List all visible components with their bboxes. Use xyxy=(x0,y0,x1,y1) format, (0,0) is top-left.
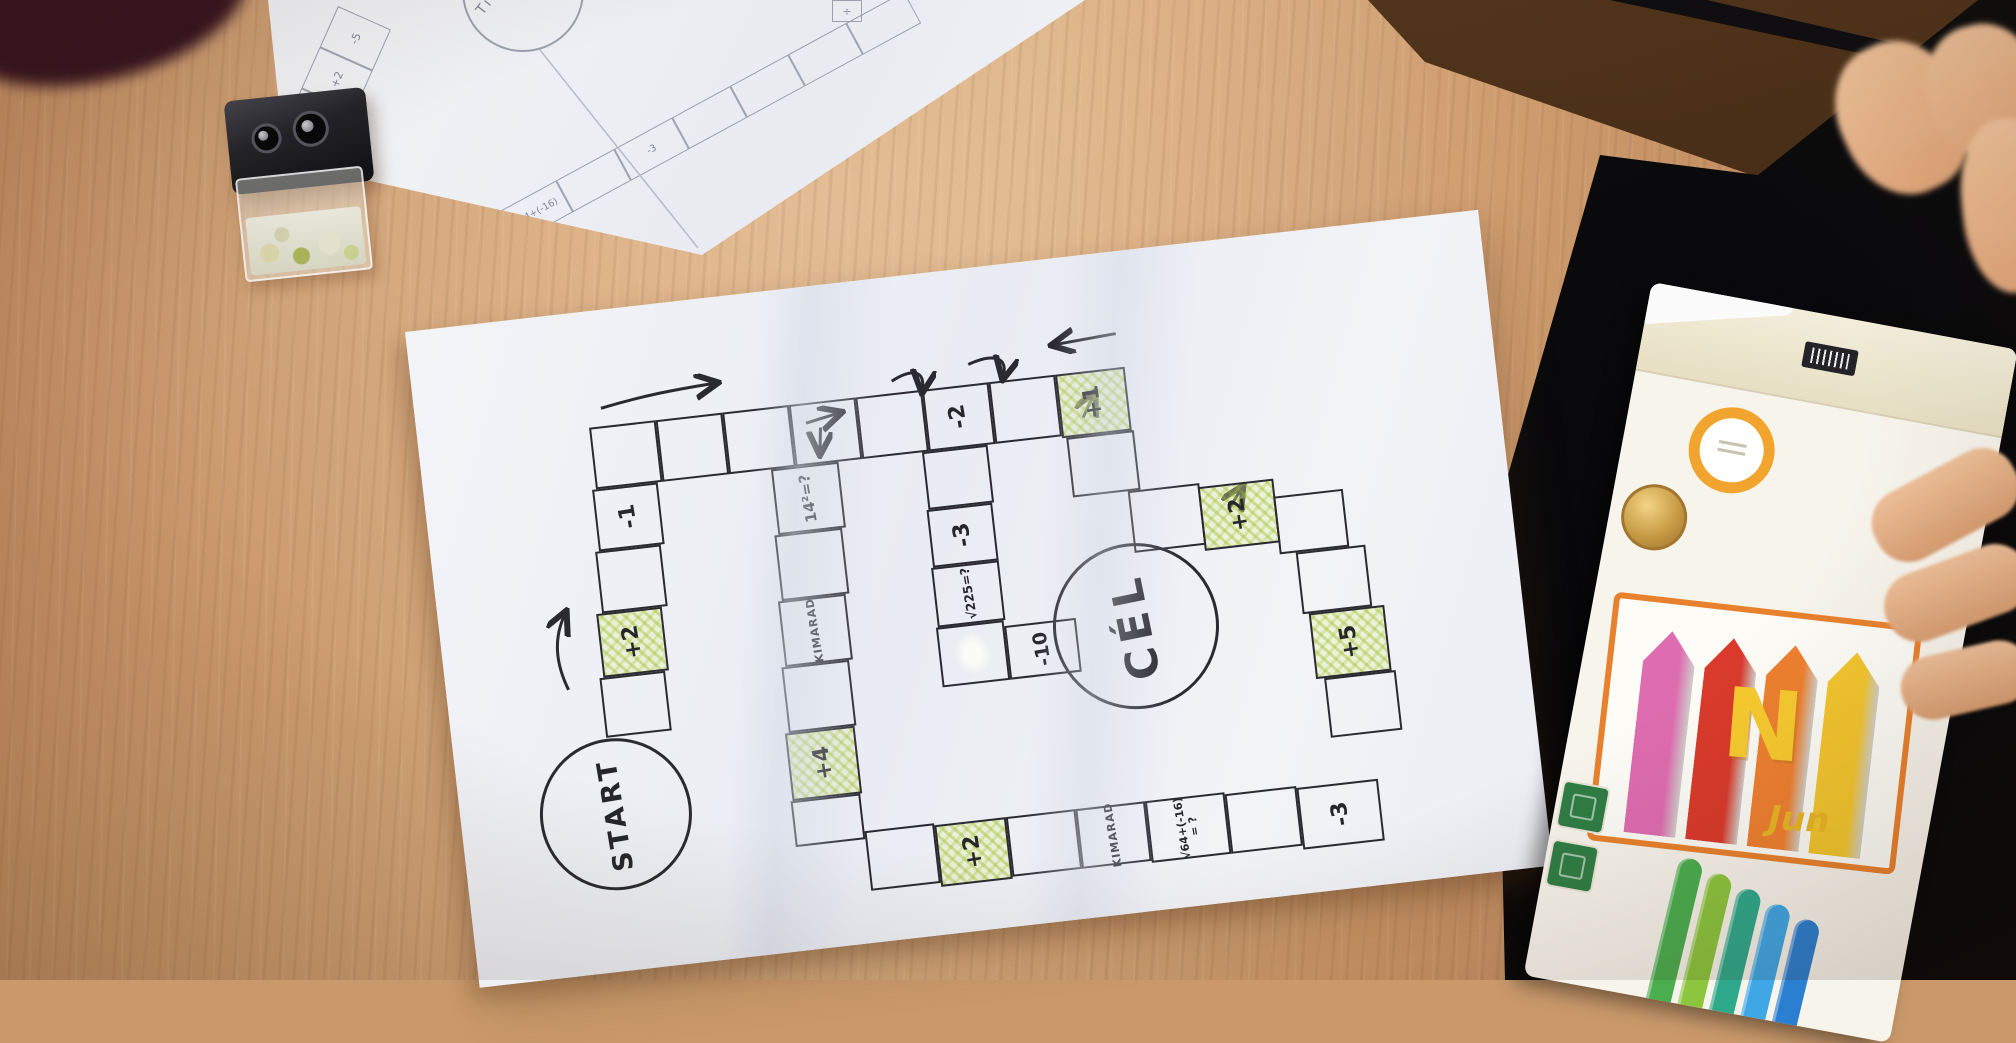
board-cell-blank xyxy=(1225,786,1303,854)
board-cell-blank xyxy=(589,420,663,489)
box-orange-ring-logo xyxy=(1682,400,1782,500)
board-cell-+4: +4 xyxy=(785,726,862,801)
board-cell-label: +2 xyxy=(618,624,646,661)
sharpener-shavings-container xyxy=(235,166,373,283)
correction-fluid-mark xyxy=(951,629,996,679)
board-cell-label: KIMARAD xyxy=(804,597,826,663)
board-cell-blank xyxy=(1066,430,1140,497)
board-cell-label: KIMARAD xyxy=(1102,802,1124,868)
board-cell-√64+(-16)=?: √64+(-16) = ? xyxy=(1145,792,1232,863)
board-cell-√225=?: √225=? xyxy=(931,560,1005,627)
eco-badge xyxy=(1555,779,1611,835)
gold-seal-coin xyxy=(1616,479,1693,556)
game-board-paper: START CÉL -2+1-1+214²=?KIMARA xyxy=(405,210,1553,988)
board-cell--10: -10 xyxy=(1004,618,1082,680)
eco-badge xyxy=(1544,838,1600,894)
real-colored-pencils xyxy=(1642,848,1931,1043)
board-cell-label: 14²=? xyxy=(797,473,821,524)
board-cell-blank xyxy=(864,823,940,891)
box-brand-letter: N xyxy=(1719,667,1808,785)
board-cell-blank xyxy=(1273,489,1349,555)
board-cell-label: +2 xyxy=(1225,496,1253,533)
board-cell-+1: +1 xyxy=(1055,367,1132,439)
board-cell-+2: +2 xyxy=(934,817,1013,887)
board-cell-KIMARAD: KIMARAD xyxy=(778,594,853,667)
board-cell--3: -3 xyxy=(927,503,999,568)
board-cell-label: -3 xyxy=(949,521,976,549)
board-cell-label: √64+(-16) = ? xyxy=(1172,795,1205,860)
board-cell--3: -3 xyxy=(1296,779,1384,850)
board-cell-+2: +2 xyxy=(1198,479,1281,551)
board-cell-label: -1 xyxy=(615,503,642,531)
board-cell-blank xyxy=(936,620,1010,687)
board-cell-+2: +2 xyxy=(596,607,669,678)
board-cell-label: -2 xyxy=(945,403,972,431)
board-cell-blank xyxy=(791,793,866,847)
board-cell-blank xyxy=(1128,483,1207,553)
board-cell-label: +4 xyxy=(809,745,837,782)
board-cell-label: +5 xyxy=(1336,623,1364,660)
board-cell-blank xyxy=(722,405,796,474)
board-cell-blank xyxy=(1324,670,1402,738)
board-cell-blank xyxy=(599,671,671,738)
board-cell-blank xyxy=(774,528,849,601)
board-cell-blank xyxy=(1006,809,1082,877)
board-cell-14²=?: 14²=? xyxy=(771,462,846,535)
board-cell-blank xyxy=(656,413,730,482)
board-cell-label: -10 xyxy=(1030,630,1055,667)
board-cell-blank xyxy=(988,375,1062,444)
board-cell-label: +2 xyxy=(959,833,987,870)
pencil-shavings xyxy=(245,206,366,276)
board-cell-blank xyxy=(781,660,856,733)
artwork-pencil xyxy=(1623,628,1698,838)
board-cell--1: -1 xyxy=(592,482,665,551)
board-cell-label: √225=? xyxy=(957,567,979,621)
photo-scene: { "main_board": { "start_label": "START"… xyxy=(0,0,2016,980)
board-cell-+5: +5 xyxy=(1309,605,1392,679)
board-cell-label: +1 xyxy=(1079,384,1107,421)
board-cell-blank xyxy=(1296,545,1373,615)
box-brand-script: Jun xyxy=(1768,798,1831,841)
board-cell-KIMARAD: KIMARAD xyxy=(1075,801,1151,869)
game-board: START CÉL -2+1-1+214²=?KIMARA xyxy=(405,210,1553,988)
board-cell-label: -3 xyxy=(1327,800,1354,828)
board-cell-blank xyxy=(789,397,863,466)
board-cell--2: -2 xyxy=(922,382,996,451)
board-cell-blank xyxy=(922,445,994,510)
board-cell-blank xyxy=(855,390,929,459)
board-cell-blank xyxy=(595,544,668,613)
